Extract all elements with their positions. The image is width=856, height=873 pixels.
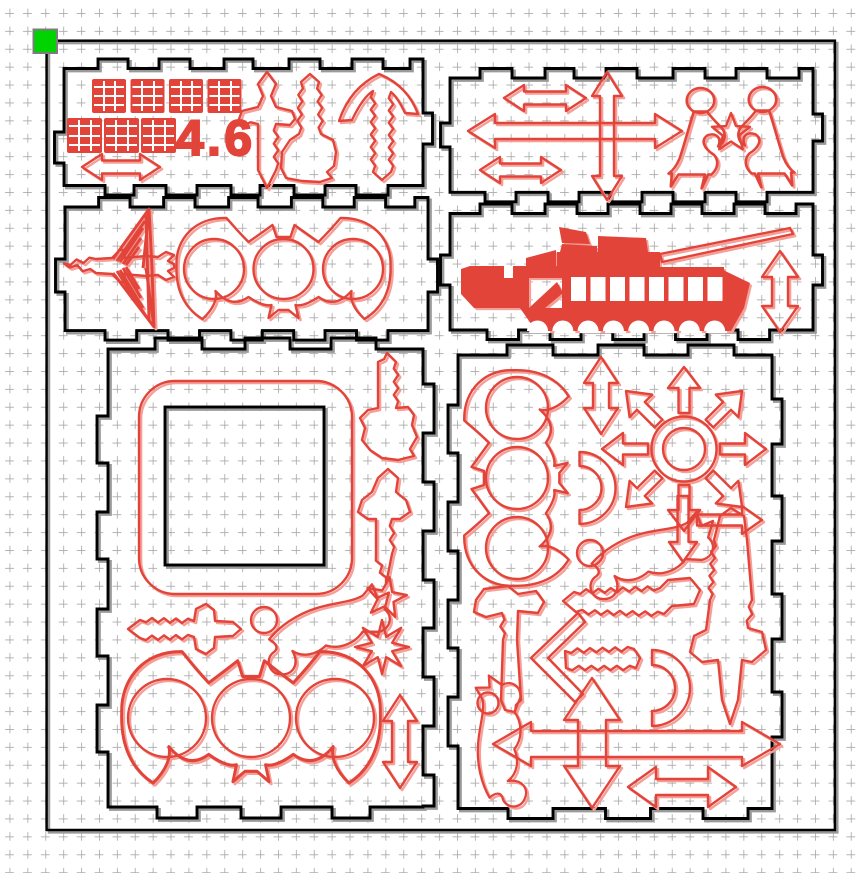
svg-text:4.6: 4.6 [176,110,252,166]
